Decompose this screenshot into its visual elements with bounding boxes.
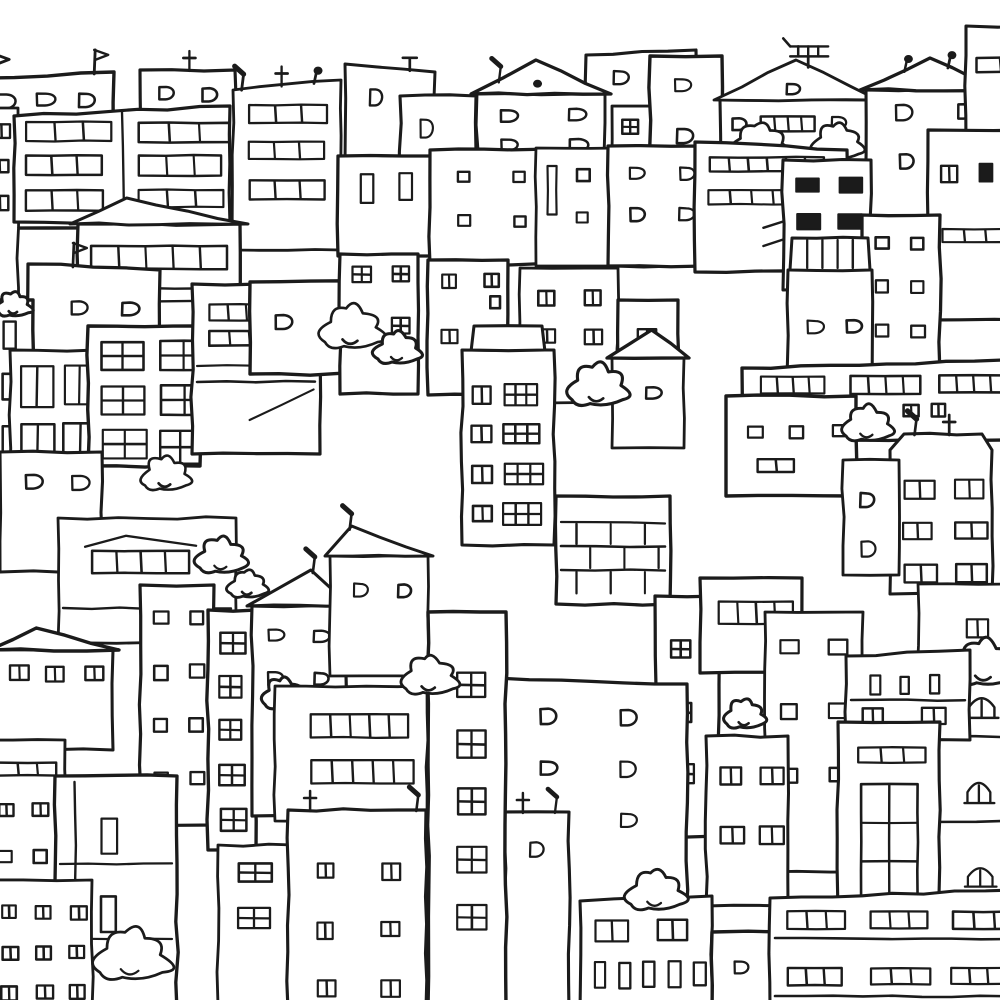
window [891, 970, 892, 984]
window [195, 191, 196, 206]
bush-73 [724, 699, 767, 728]
window [920, 482, 921, 498]
window [973, 376, 974, 391]
window [274, 143, 275, 158]
flag-topper [94, 50, 95, 74]
floor-band [197, 381, 315, 382]
window [737, 603, 738, 623]
window [458, 685, 484, 686]
building-outline [965, 26, 1000, 146]
window [167, 191, 168, 206]
roof [471, 326, 545, 351]
window [987, 969, 988, 983]
window [956, 376, 957, 391]
window [165, 552, 166, 573]
window [373, 761, 374, 782]
building-12 [965, 26, 1000, 146]
window [776, 460, 777, 471]
building-62 [504, 789, 570, 1000]
window [194, 157, 195, 175]
building-outline [726, 395, 857, 496]
building-46 [890, 411, 993, 595]
window [18, 764, 19, 775]
building-outline [287, 809, 427, 1000]
building-67 [217, 844, 295, 1000]
building-outline [842, 459, 900, 575]
building-76 [287, 787, 427, 1000]
window [393, 761, 394, 782]
building-outline [0, 880, 93, 1000]
window [79, 367, 80, 404]
window [824, 969, 825, 985]
window [868, 377, 869, 393]
window [332, 761, 333, 782]
bush-blob [724, 699, 767, 728]
building-21 [535, 148, 618, 266]
window [797, 214, 820, 229]
window [116, 552, 117, 573]
building-22 [608, 146, 706, 267]
window [166, 157, 167, 175]
window [903, 749, 904, 762]
window [228, 306, 229, 320]
window [826, 912, 827, 928]
window [459, 801, 484, 802]
ball-topper [314, 68, 321, 74]
window [980, 164, 993, 182]
window [299, 143, 300, 158]
window [881, 749, 882, 762]
window [838, 214, 861, 228]
window [885, 377, 886, 393]
window [756, 603, 757, 623]
floor-band [561, 570, 665, 571]
building-72 [705, 735, 788, 906]
window [173, 247, 174, 268]
floor-band [851, 700, 965, 701]
building-outline [705, 735, 788, 906]
roof [325, 526, 433, 556]
building-outline [608, 146, 706, 267]
building-outline [504, 812, 570, 1000]
floor-band [775, 938, 1000, 939]
window [350, 715, 351, 736]
window [773, 191, 774, 203]
window [389, 715, 390, 736]
window [921, 566, 922, 582]
window [200, 247, 201, 268]
window [672, 921, 673, 939]
window [809, 378, 810, 393]
window [300, 181, 301, 198]
window [330, 715, 331, 736]
building-65 [0, 628, 119, 750]
window [977, 620, 978, 636]
window [458, 744, 484, 745]
doodle-city-illustration: Hand-drawn doodle cityscape sketch [0, 0, 1000, 1000]
window [890, 913, 891, 928]
window [793, 378, 794, 393]
ball-topper [948, 52, 955, 58]
window [994, 913, 995, 928]
window [118, 247, 119, 268]
window [801, 118, 802, 131]
window [458, 860, 485, 861]
hook-topper [343, 506, 352, 514]
window [985, 230, 986, 241]
window [772, 769, 773, 784]
window [788, 118, 789, 131]
building-47 [842, 459, 900, 575]
window [37, 764, 38, 775]
building-82 [0, 880, 93, 1000]
building-52 [207, 610, 257, 850]
window [777, 378, 778, 393]
window [275, 106, 276, 122]
window [729, 158, 730, 170]
window [964, 230, 965, 241]
window [612, 922, 613, 941]
window [969, 969, 970, 983]
window [911, 970, 912, 984]
window [751, 191, 752, 203]
window [806, 969, 807, 985]
window [732, 828, 733, 843]
window [52, 191, 53, 210]
window [772, 827, 773, 843]
window [458, 917, 485, 918]
window [55, 123, 56, 140]
window [807, 912, 808, 928]
building-outline [612, 357, 684, 448]
window [275, 181, 276, 198]
roof [790, 237, 870, 270]
building-77 [580, 896, 712, 1000]
building-58 [555, 496, 671, 605]
building-80 [769, 890, 1000, 1000]
window [903, 377, 904, 393]
window [840, 178, 863, 193]
floor-band [60, 863, 172, 864]
window [77, 157, 78, 174]
window [534, 81, 541, 87]
window [748, 158, 749, 170]
window [369, 715, 370, 736]
building-57 [325, 506, 433, 676]
building-19 [337, 156, 434, 257]
window [301, 106, 302, 122]
window [199, 124, 200, 141]
window [352, 761, 353, 782]
building-outline [580, 896, 712, 1000]
ball-topper [905, 56, 912, 62]
window [972, 565, 973, 581]
window [969, 481, 970, 498]
building-outline [555, 496, 671, 605]
window [77, 191, 78, 210]
city-sketch-canvas: Hand-drawn doodle cityscape sketch [0, 0, 1000, 1000]
window [796, 179, 819, 192]
window [917, 524, 918, 538]
building-44 [726, 395, 857, 496]
building-68 [274, 686, 428, 821]
hook-topper [492, 58, 501, 66]
hook-topper [306, 549, 315, 557]
tv-topper [783, 38, 790, 46]
flag-topper [73, 243, 74, 267]
window [909, 913, 910, 928]
window [973, 913, 974, 928]
window [51, 157, 52, 174]
window [145, 247, 146, 268]
window [767, 158, 768, 170]
window [37, 367, 38, 406]
window [83, 123, 84, 140]
window [971, 523, 972, 537]
window [169, 124, 170, 141]
window [990, 376, 991, 391]
window [246, 306, 247, 320]
window [730, 191, 731, 203]
window [774, 118, 775, 131]
window [141, 552, 142, 573]
flag-topper [0, 54, 9, 64]
window [229, 332, 230, 345]
building-outline [274, 686, 428, 821]
building-outline [337, 156, 434, 257]
floor-band [561, 546, 665, 547]
floor-band [775, 996, 1000, 997]
building-40 [461, 326, 555, 546]
